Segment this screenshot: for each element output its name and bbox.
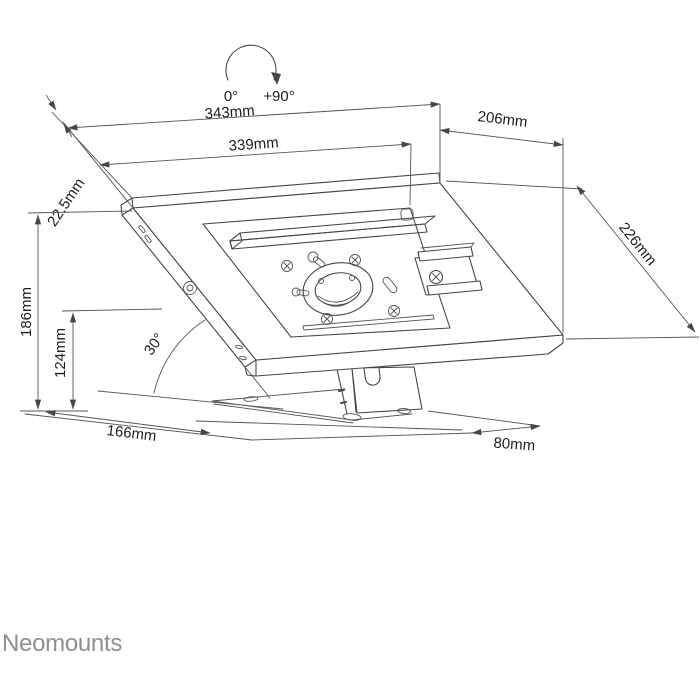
rotation-start-label: 0° bbox=[224, 88, 238, 105]
riser-slot bbox=[341, 402, 346, 403]
dim-inner-width-label: 339mm bbox=[228, 134, 279, 154]
dim-edge-thickness-label: 22.5mm bbox=[44, 175, 88, 229]
dim-arrow bbox=[46, 95, 56, 110]
tablet-enclosure bbox=[121, 173, 563, 376]
dim-total-height-label: 186mm bbox=[18, 287, 35, 337]
tablet-mount-dimension-diagram: 343mm 339mm 22.5mm 206mm 226mm bbox=[0, 0, 700, 700]
dim-pivot-height: 124mm bbox=[52, 309, 162, 409]
dim-line bbox=[472, 426, 540, 433]
stand-foot bbox=[397, 408, 410, 414]
dim-line bbox=[577, 186, 695, 332]
stand-bracket-plate bbox=[352, 367, 422, 413]
dim-outer-width-label: 343mm bbox=[204, 102, 255, 122]
brand-logo-text: Neomounts bbox=[2, 630, 122, 657]
stand-foot bbox=[343, 413, 362, 421]
ground-back-edge bbox=[196, 421, 462, 430]
extension-line bbox=[28, 211, 132, 213]
dim-line bbox=[440, 130, 563, 145]
dim-base-depth: 166mm bbox=[46, 412, 210, 445]
technical-drawing-page: 343mm 339mm 22.5mm 206mm 226mm bbox=[0, 0, 700, 700]
dim-pivot-height-label: 124mm bbox=[52, 328, 69, 378]
stand bbox=[212, 367, 422, 423]
dim-rear-offset: 80mm bbox=[428, 411, 540, 454]
riser-slot bbox=[339, 390, 344, 391]
rotation-indicator: 0° +90° bbox=[224, 45, 295, 105]
tilt-angle-arc bbox=[154, 320, 205, 393]
base-plate-slot bbox=[244, 396, 258, 402]
dim-rear-offset-label: 80mm bbox=[493, 435, 536, 455]
base-plate-thickness-edge bbox=[214, 404, 353, 423]
clamp-bracket bbox=[415, 243, 482, 295]
dim-arrow bbox=[64, 124, 72, 137]
tilt-baseline bbox=[98, 391, 283, 409]
extension-line bbox=[62, 309, 162, 311]
tilt-angle-label: 30° bbox=[141, 330, 168, 358]
table-front-right-edge bbox=[252, 433, 472, 440]
dim-edge-thickness: 22.5mm bbox=[44, 95, 132, 230]
extension-line bbox=[428, 411, 540, 426]
rotation-arc bbox=[226, 45, 276, 80]
extension-line bbox=[446, 181, 582, 189]
rotation-end-label: +90° bbox=[263, 88, 294, 105]
dim-top-depth-label: 206mm bbox=[477, 108, 529, 131]
rotation-arrow-icon bbox=[271, 72, 281, 85]
base-plate-back-edge bbox=[212, 389, 345, 401]
extension-line bbox=[566, 337, 699, 339]
